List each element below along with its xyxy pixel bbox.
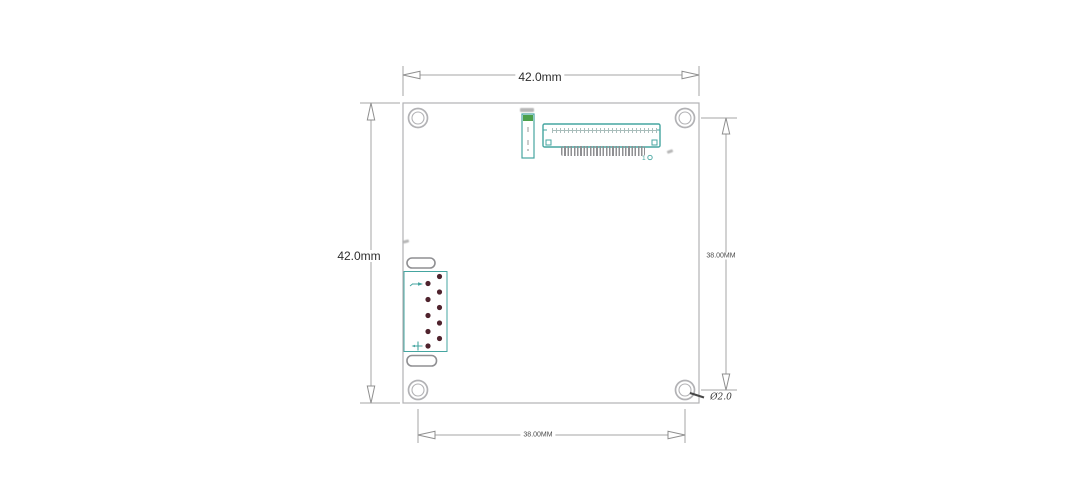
component-refdes-mark <box>520 108 534 112</box>
dimension-arrow-icon <box>722 118 729 134</box>
component-inner-dot <box>527 149 529 151</box>
connector-slot-top <box>407 258 435 268</box>
dimension-arrow-icon <box>403 71 420 78</box>
dimension-label-right-hole-spacing: 38.00MM <box>703 253 738 260</box>
dimension-arrow-icon <box>367 386 374 403</box>
pin-hole <box>437 274 442 279</box>
connector-slot-bottom <box>407 356 437 367</box>
board-outline <box>403 103 699 403</box>
dimension-arrow-icon <box>418 431 435 438</box>
pcb-dimension-drawing: 1 <box>0 0 1078 500</box>
pin-hole <box>425 343 430 348</box>
pin-hole <box>425 297 430 302</box>
pin-hole <box>425 329 430 334</box>
pin-one-label: 1 <box>642 155 646 162</box>
dimension-arrow-icon <box>668 431 685 438</box>
hole-diameter-callout: Ø2.0 <box>707 394 735 403</box>
pin-hole <box>437 336 442 341</box>
board <box>403 103 699 403</box>
dimension-arrow-icon <box>682 71 699 78</box>
pin-hole <box>437 289 442 294</box>
dimension-arrow-icon <box>367 103 374 120</box>
pin-hole <box>437 305 442 310</box>
connector-pin-comb <box>561 146 645 156</box>
dimension-label-left-height: 42.0mm <box>334 250 383 262</box>
dimension-arrow-icon <box>722 374 729 390</box>
pin-hole <box>437 320 442 325</box>
dimension-label-top-width: 42.0mm <box>515 71 564 83</box>
connector-tick-row <box>552 128 657 133</box>
dimension-label-bottom-hole-spacing: 38.00MM <box>520 432 555 439</box>
pin-hole <box>425 281 430 286</box>
small-component <box>522 114 534 158</box>
pin-hole <box>425 313 430 318</box>
component-green-band <box>523 115 533 121</box>
